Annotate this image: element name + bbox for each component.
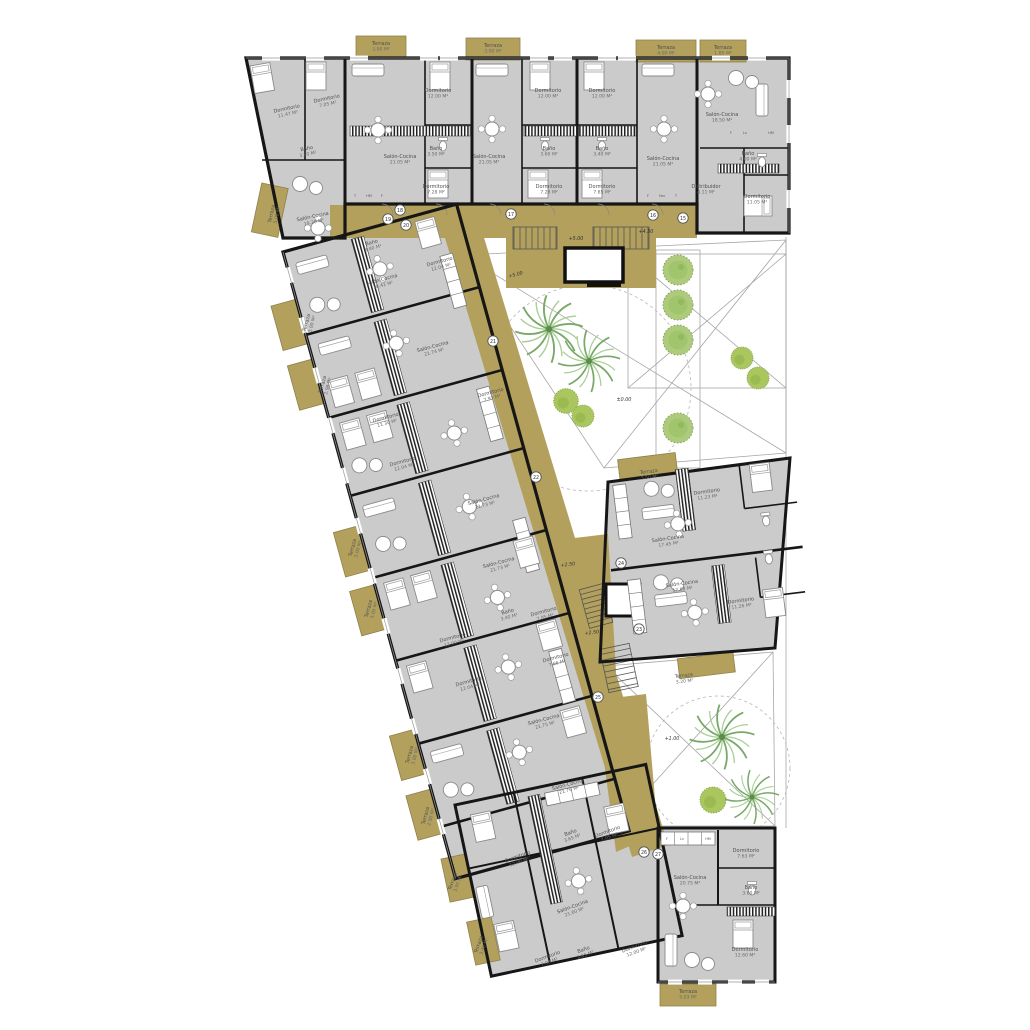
room-label: Dormitorio12.00 M²: [425, 88, 452, 100]
unit-number: 25: [595, 695, 601, 701]
room-label: Terraza3.50 M²: [639, 468, 659, 482]
unit-number: 17: [508, 212, 514, 218]
palm-icon: [515, 295, 583, 363]
bush-icon: [747, 367, 769, 389]
unit-number: 22: [533, 475, 539, 481]
wall-segment: [587, 281, 621, 287]
appliance-letter: F: [647, 194, 649, 198]
unit-number: 16: [650, 213, 656, 219]
level-mark: +5.00: [569, 236, 584, 242]
room-label: Baño3.40 M²: [593, 146, 611, 158]
room-label: Dormitorio11.05 M²: [744, 194, 771, 206]
room-label: Baño4.00 M²: [739, 151, 757, 163]
appliance-letter: Lv: [680, 837, 684, 841]
tree-icon: [663, 290, 693, 320]
unit-number: 21: [490, 339, 496, 345]
tree-icon: [663, 255, 693, 285]
unit-number: 26: [641, 850, 647, 856]
appliance-letter: HM: [705, 837, 711, 841]
room-label: Terraza1.85 M²: [713, 45, 732, 57]
appliance-letter: Lv: [743, 131, 747, 135]
room-label: Dormitorio12.00 M²: [535, 88, 562, 100]
room-label: Terraza4.00 M²: [656, 45, 675, 57]
unit-number: 15: [680, 216, 686, 222]
bush-icon: [731, 347, 753, 369]
appliance-letter: Hor: [659, 194, 666, 198]
floor-plan-canvas: Dormitorio11.47 M²Dormitorio7.05 M²Baño3…: [0, 0, 1030, 1030]
bush-icon: [572, 405, 594, 427]
appliance-letter: F: [666, 837, 668, 841]
room-label: Baño3.60 M²: [742, 885, 760, 897]
elevator-main: [565, 248, 623, 282]
room-label: Terraza3.20 M²: [674, 672, 694, 686]
unit-number: 20: [403, 223, 409, 229]
unit-number: 27: [655, 852, 661, 858]
appliance-letter: HM: [768, 131, 774, 135]
room-label: Terraza3.00 M²: [483, 43, 502, 55]
unit-number: 23: [636, 627, 642, 633]
appliance-letter: F: [381, 194, 383, 198]
tree-icon: [663, 325, 693, 355]
level-mark: ±0.00: [617, 397, 632, 403]
room-label: Terraza3.00 M²: [371, 41, 390, 53]
level-mark: +1.00: [665, 736, 680, 742]
room-label: Dormitorio12.00 M²: [589, 88, 616, 100]
appliance-letter: HM: [366, 194, 372, 198]
unit-number: 24: [618, 561, 624, 567]
tree-icon: [663, 413, 693, 443]
unit-number: 19: [385, 217, 391, 223]
room-label: Baño3.50 M²: [427, 146, 445, 158]
floor-plan-svg: Dormitorio11.47 M²Dormitorio7.05 M²Baño3…: [0, 0, 1030, 1030]
appliance-letter: F: [730, 131, 732, 135]
palm-icon: [690, 705, 755, 770]
unit-number: 18: [397, 208, 403, 214]
level-mark: +4.50: [639, 229, 654, 235]
room-label: Terraza5.03 M²: [678, 989, 697, 1001]
room-label: Baño3.60 M²: [540, 146, 558, 158]
bush-icon: [700, 787, 726, 813]
room-label: Dormitorio12.60 M²: [732, 947, 759, 959]
palm-icon: [725, 770, 779, 824]
